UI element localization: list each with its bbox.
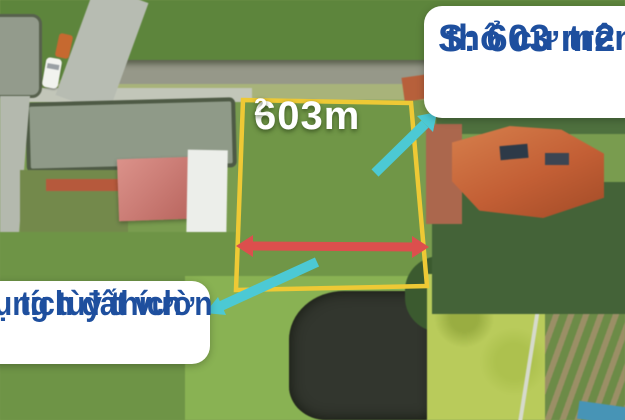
callout-bottom-left: tích đất vườn ụng tùy thích [0,281,210,364]
callout-top-line2: thổ cư trên [446,16,625,60]
callout-bottom-line2: ụng tùy thích [0,285,182,324]
callout-arrow-top-icon [375,112,437,173]
plot-area-superscript: 2 [254,96,268,120]
width-arrow-icon [236,235,429,258]
plot-area-value: 603m [254,96,360,136]
listing-photo: 603m2 S: 603 m2 thổ cư trên tích đất vườ… [0,0,625,420]
callout-top-right: S: 603 m2 thổ cư trên [424,6,625,118]
